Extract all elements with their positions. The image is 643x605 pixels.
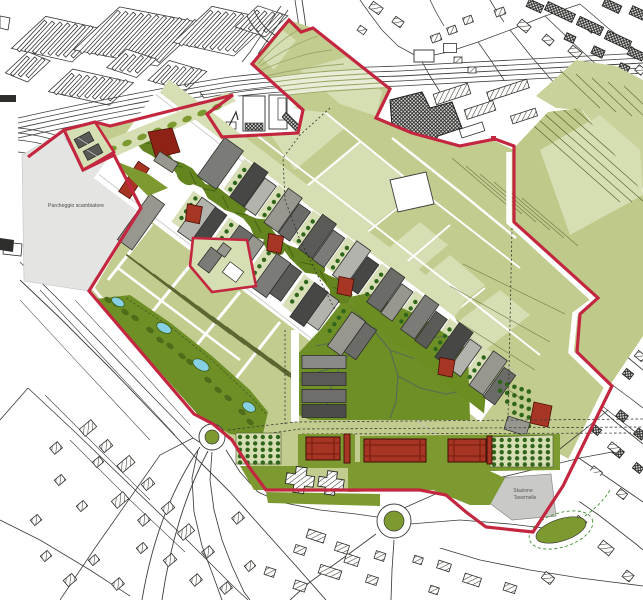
svg-text:Stazione: Stazione [513,488,533,494]
svg-text:Parcheggio scambiatore: Parcheggio scambiatore [48,203,104,209]
svg-text:Tavernelle: Tavernelle [514,495,537,501]
